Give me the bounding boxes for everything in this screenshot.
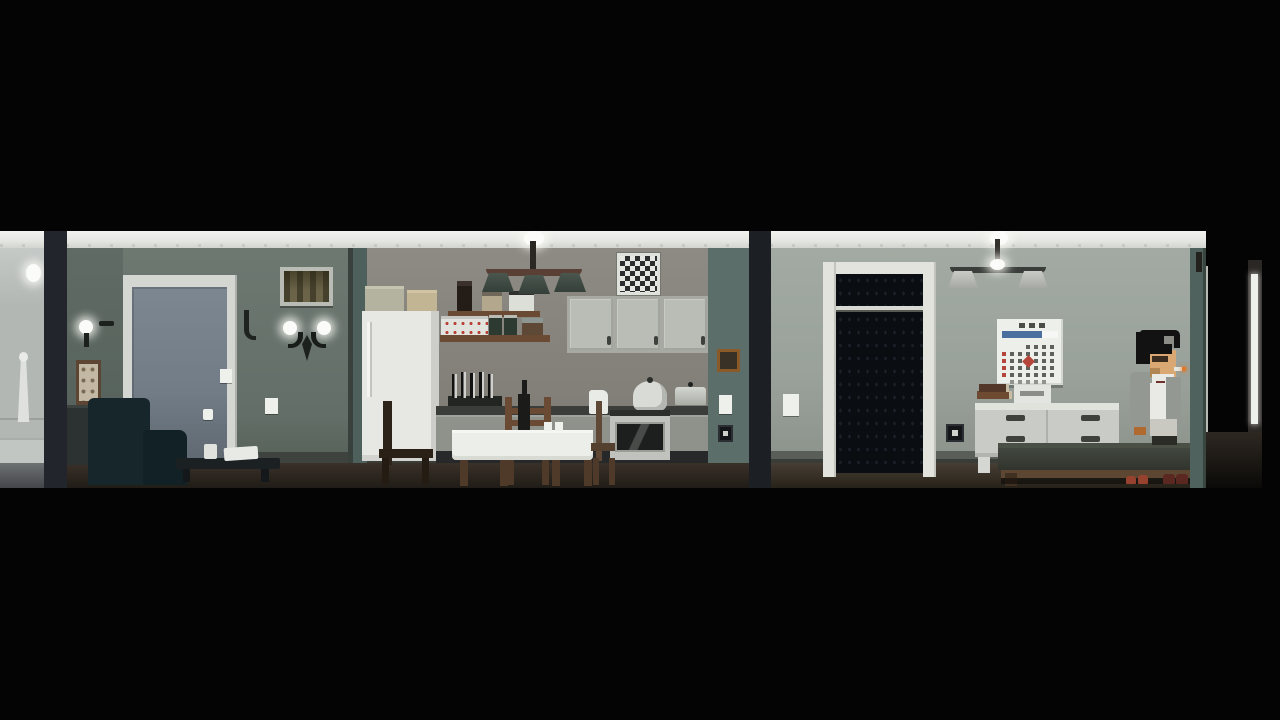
knife <box>470 373 475 398</box>
table-leg <box>460 460 468 486</box>
sconce-left-arm <box>84 333 89 347</box>
drawer-handle[interactable] <box>1081 436 1100 442</box>
shelf-board <box>440 335 550 342</box>
exit-teal-strip <box>1190 248 1206 498</box>
calendar-marked-day <box>1022 355 1035 368</box>
green-jar <box>504 315 517 335</box>
letterbox-right <box>1262 228 1280 490</box>
calendar-progress-rest <box>1042 331 1058 338</box>
neighbour-room <box>0 248 44 463</box>
open-exit-door[interactable] <box>1206 266 1248 432</box>
character-hair-fringe <box>1148 344 1172 354</box>
papers[interactable] <box>224 446 259 461</box>
door-knob[interactable] <box>203 409 213 420</box>
coffee-table-leg <box>261 469 269 482</box>
cup <box>555 422 563 431</box>
sconce-left-icon <box>79 320 93 334</box>
stove[interactable] <box>610 391 670 460</box>
sconce-arm-right <box>311 332 326 348</box>
chair-leg <box>507 460 514 485</box>
book-stack <box>979 384 1009 392</box>
wall-lamp-icon <box>26 264 41 282</box>
closet-doorway[interactable] <box>836 274 923 473</box>
lamp-shade <box>1018 271 1048 288</box>
dividing-wall <box>44 228 67 488</box>
drawer-handle[interactable] <box>1006 436 1025 442</box>
power-outlet <box>718 425 733 442</box>
game-viewport <box>0 0 1280 720</box>
white-device <box>1014 385 1051 403</box>
checkerboard-frame <box>617 253 660 295</box>
thermostat[interactable] <box>265 398 278 414</box>
cabinet-handle[interactable] <box>654 336 658 345</box>
light-switch[interactable] <box>719 395 732 414</box>
letterbox-bottom <box>0 488 1280 720</box>
dividing-wall <box>749 228 771 488</box>
calendar-day-dot <box>1042 359 1046 363</box>
side-chair-seat <box>591 443 615 451</box>
kettle[interactable] <box>633 381 667 411</box>
calendar-day-dot <box>1018 380 1022 384</box>
shelf-bottle <box>457 281 472 311</box>
calendar-day-dot <box>1050 366 1054 370</box>
letterbox-top <box>0 0 1280 231</box>
slipper-dark <box>1163 474 1175 484</box>
shelf-jar <box>482 292 502 311</box>
spice-rack <box>441 316 488 335</box>
exit-light-gap <box>1251 274 1258 424</box>
device-slot <box>1020 391 1044 396</box>
coat-hook-small <box>99 321 114 326</box>
calendar-day-dot <box>1002 366 1006 370</box>
calendar-grid <box>1002 345 1060 383</box>
outlet-dot <box>723 431 728 436</box>
wall-sconce-double <box>282 319 332 363</box>
green-jar <box>489 315 502 335</box>
calendar-progress-bar <box>1002 331 1042 338</box>
character-shirt <box>1150 383 1166 421</box>
cabinet-handle[interactable] <box>607 336 611 345</box>
calendar-day-dot <box>1018 352 1022 356</box>
clay-pot <box>522 318 543 335</box>
sconce-arm-left <box>288 332 303 348</box>
closet-post <box>823 262 836 477</box>
table-leg <box>584 460 592 486</box>
slipper-dark <box>1176 474 1188 484</box>
wall-picture <box>280 267 333 306</box>
character-jacket-left <box>1130 372 1150 432</box>
statue-head <box>19 352 28 362</box>
calendar-title-marks <box>1019 323 1045 328</box>
neighbour-baseboard <box>0 438 44 463</box>
slipper <box>1138 475 1148 484</box>
shelf-canister <box>509 291 534 311</box>
armchair-back[interactable] <box>88 398 150 485</box>
calendar-day-dot <box>1034 345 1038 349</box>
door-latch[interactable] <box>220 369 232 383</box>
calendar-day-dot <box>1026 345 1030 349</box>
player-character[interactable] <box>1126 330 1188 445</box>
kitchen-chandelier <box>480 231 588 293</box>
power-outlet <box>946 424 964 442</box>
box-on-fridge <box>407 290 437 312</box>
closet-lintel <box>823 262 936 274</box>
pot[interactable] <box>675 387 706 405</box>
pot-lid-knob <box>688 382 693 387</box>
calendar-day-dot <box>1042 345 1046 349</box>
oven-window[interactable] <box>615 422 665 452</box>
cabinet-handle[interactable] <box>701 336 705 345</box>
refrigerator[interactable] <box>362 311 439 461</box>
lamp-shade <box>518 275 550 294</box>
calendar-day-dot <box>1018 373 1022 377</box>
fridge-handle[interactable] <box>367 322 372 397</box>
closet-rail <box>836 306 923 312</box>
calendar-day-dot <box>1034 366 1038 370</box>
coffee-table-leg <box>183 469 190 482</box>
drawer-handle[interactable] <box>1006 415 1025 421</box>
character-eye-shadow <box>1152 356 1168 362</box>
chair-leg <box>609 458 615 485</box>
lamp-shade <box>948 271 978 288</box>
wine-bottle <box>518 394 530 432</box>
small-picture <box>717 349 740 372</box>
calendar-day-dot <box>1034 380 1038 384</box>
wooden-chair-leg <box>382 458 389 484</box>
calendar-day-dot <box>1002 359 1006 363</box>
knife <box>461 372 466 398</box>
calendar-day-dot <box>1002 373 1006 377</box>
calendar-day-dot <box>1010 359 1014 363</box>
calendar-day-dot <box>1042 380 1046 384</box>
side-chair-post <box>596 401 602 461</box>
knife <box>452 374 457 398</box>
chair-leg <box>593 458 599 485</box>
drawer-handle[interactable] <box>1081 415 1100 421</box>
wooden-chair-seat <box>379 449 433 458</box>
calendar-day-dot <box>1050 352 1054 356</box>
dresser-top <box>975 403 1119 410</box>
calendar-day-dot <box>1042 352 1046 356</box>
box-on-fridge <box>365 286 404 312</box>
calendar-day-dot <box>1034 352 1038 356</box>
book-stack <box>977 391 1012 399</box>
living-room <box>67 248 348 463</box>
calendar-day-dot <box>1050 359 1054 363</box>
calendar-day-dot <box>1034 373 1038 377</box>
character-jacket-right <box>1166 377 1181 425</box>
calendar[interactable] <box>997 319 1063 385</box>
framed-photo-inner <box>79 364 98 401</box>
calendar-day-dot <box>1010 366 1014 370</box>
calendar-day-dot <box>1018 366 1022 370</box>
chandelier-center-bulb-icon <box>990 259 1005 270</box>
cup[interactable] <box>204 444 217 459</box>
knife <box>488 374 493 398</box>
calendar-day-dot <box>1050 345 1054 349</box>
calendar-day-dot <box>1002 352 1006 356</box>
neighbour-floor <box>0 463 44 488</box>
exit-floor-shadow <box>1206 432 1262 488</box>
character-trousers <box>1150 419 1177 436</box>
outlet-dot <box>952 430 958 436</box>
dresser-leg <box>978 457 990 473</box>
calendar-day-dot <box>1050 373 1054 377</box>
bed-blanket <box>998 443 1206 470</box>
calendar-day-dot <box>1010 373 1014 377</box>
calendar-day-dot <box>1042 373 1046 377</box>
wooden-chair-leg <box>422 458 429 484</box>
chair-leg <box>542 460 549 485</box>
light-switch[interactable] <box>783 394 799 416</box>
character-shoes <box>1152 436 1177 445</box>
bedroom-chandelier <box>948 231 1048 289</box>
closet-post <box>923 262 936 477</box>
character-hand <box>1134 427 1146 435</box>
table-leg <box>552 460 560 486</box>
dining-table[interactable] <box>452 430 593 460</box>
calendar-day-dot <box>1010 380 1014 384</box>
slipper <box>1126 476 1136 484</box>
cup <box>544 422 552 431</box>
calendar-day-dot <box>1026 373 1030 377</box>
kettle-knob <box>647 377 653 383</box>
hanging-coat-icon <box>244 310 256 340</box>
calendar-day-dot <box>1010 352 1014 356</box>
door-hinge-post <box>1196 252 1202 272</box>
calendar-day-dot <box>1026 380 1030 384</box>
cigarette-tip-icon <box>1182 367 1186 371</box>
knife <box>479 372 484 398</box>
upper-cabinets[interactable] <box>567 296 710 353</box>
calendar-day-dot <box>1042 366 1046 370</box>
picture-art <box>284 271 329 302</box>
